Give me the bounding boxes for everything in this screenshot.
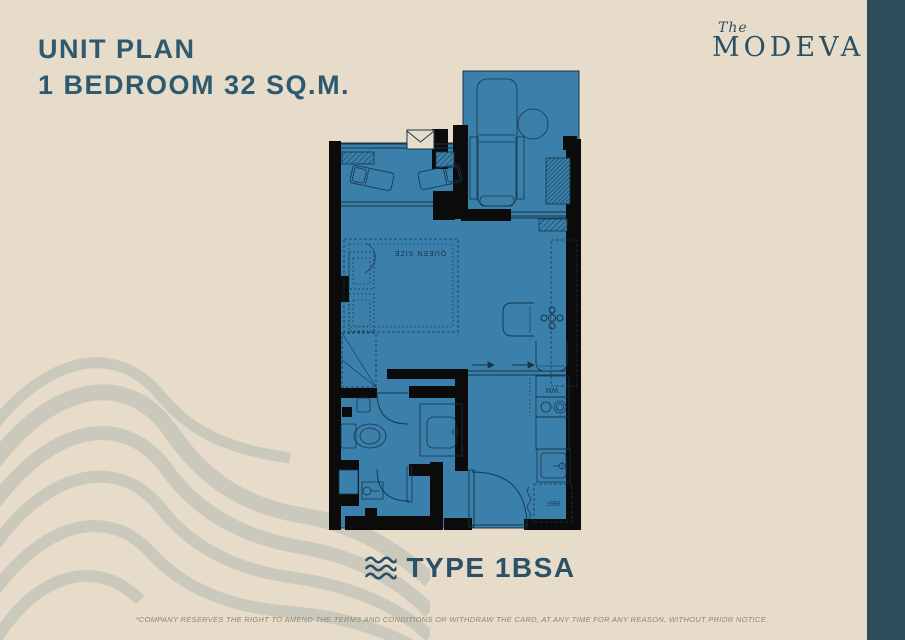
side-accent-band bbox=[867, 0, 905, 640]
type-label-row: TYPE 1BSA bbox=[364, 552, 575, 584]
brand-logo: The MODEVA bbox=[712, 20, 862, 63]
disclaimer-text: *COMPANY RESERVES THE RIGHT TO AMEND THE… bbox=[136, 615, 769, 624]
planter bbox=[539, 219, 567, 231]
fridge-label: REF. bbox=[546, 499, 560, 506]
type-label: TYPE 1BSA bbox=[406, 552, 575, 584]
wave-icon bbox=[364, 555, 396, 581]
planter bbox=[546, 158, 570, 204]
brand-logo-name: MODEVA bbox=[712, 32, 864, 63]
pipe-shaft bbox=[339, 470, 358, 494]
washer-label: WM bbox=[546, 386, 559, 393]
planter bbox=[342, 152, 374, 164]
page-title-line2: 1 BEDROOM 32 SQ.M. bbox=[38, 68, 350, 104]
page-title: UNIT PLAN 1 BEDROOM 32 SQ.M. bbox=[38, 32, 350, 103]
floor-plan: QUEEN SIZE WM bbox=[325, 62, 587, 534]
bed-label: QUEEN SIZE bbox=[394, 249, 446, 256]
planter bbox=[436, 152, 454, 167]
ac-unit bbox=[407, 130, 434, 149]
page-title-line1: UNIT PLAN bbox=[38, 32, 350, 68]
